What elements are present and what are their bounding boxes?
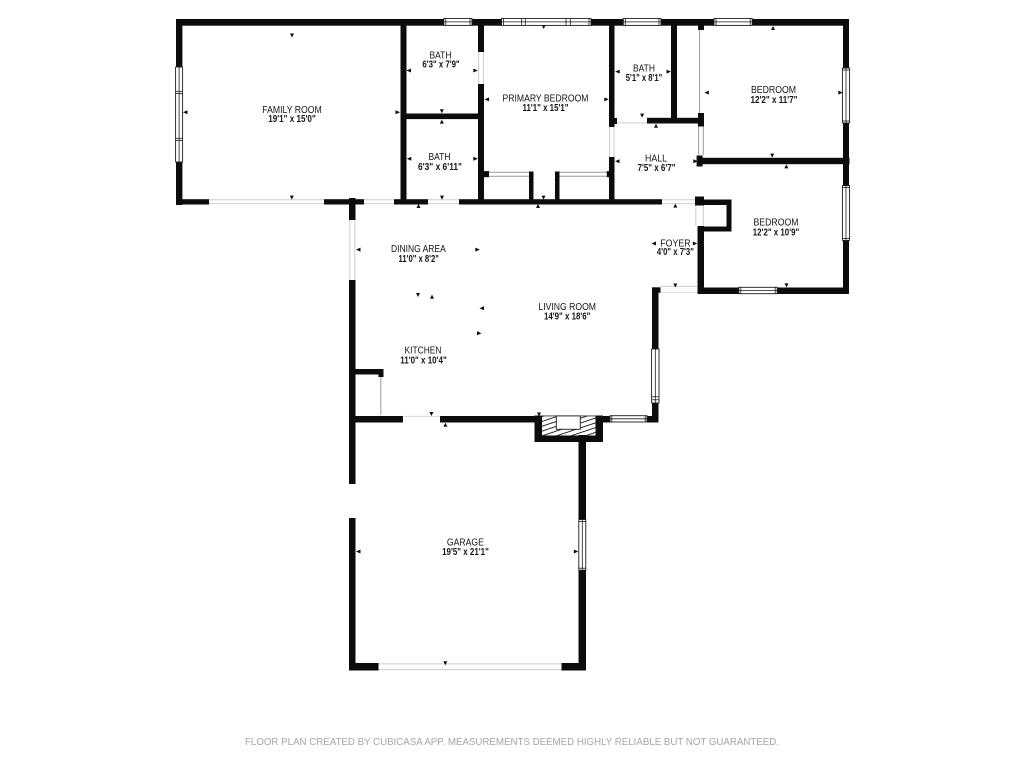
svg-text:11'1" x 15'1": 11'1" x 15'1" (523, 102, 569, 114)
svg-text:FLOOR PLAN CREATED BY CUBICASA: FLOOR PLAN CREATED BY CUBICASA APP. MEAS… (245, 737, 779, 748)
svg-text:6'3" x 6'11": 6'3" x 6'11" (418, 161, 462, 173)
svg-text:12'2" x 10'9": 12'2" x 10'9" (753, 226, 800, 238)
svg-text:5'1" x 8'1": 5'1" x 8'1" (626, 72, 663, 84)
svg-text:11'0" x 8'2": 11'0" x 8'2" (399, 253, 439, 265)
svg-text:11'0" x 10'4": 11'0" x 10'4" (400, 354, 447, 366)
svg-text:14'9" x 18'6": 14'9" x 18'6" (544, 311, 591, 323)
svg-text:19'1" x 15'0": 19'1" x 15'0" (268, 113, 316, 125)
svg-text:19'5" x 21'1": 19'5" x 21'1" (442, 546, 489, 558)
svg-text:6'3" x 7'9": 6'3" x 7'9" (422, 58, 459, 70)
svg-text:4'0" x 7'3": 4'0" x 7'3" (657, 246, 694, 258)
svg-text:7'5" x 6'7": 7'5" x 6'7" (638, 162, 676, 174)
svg-text:12'2" x 11'7": 12'2" x 11'7" (751, 94, 798, 106)
